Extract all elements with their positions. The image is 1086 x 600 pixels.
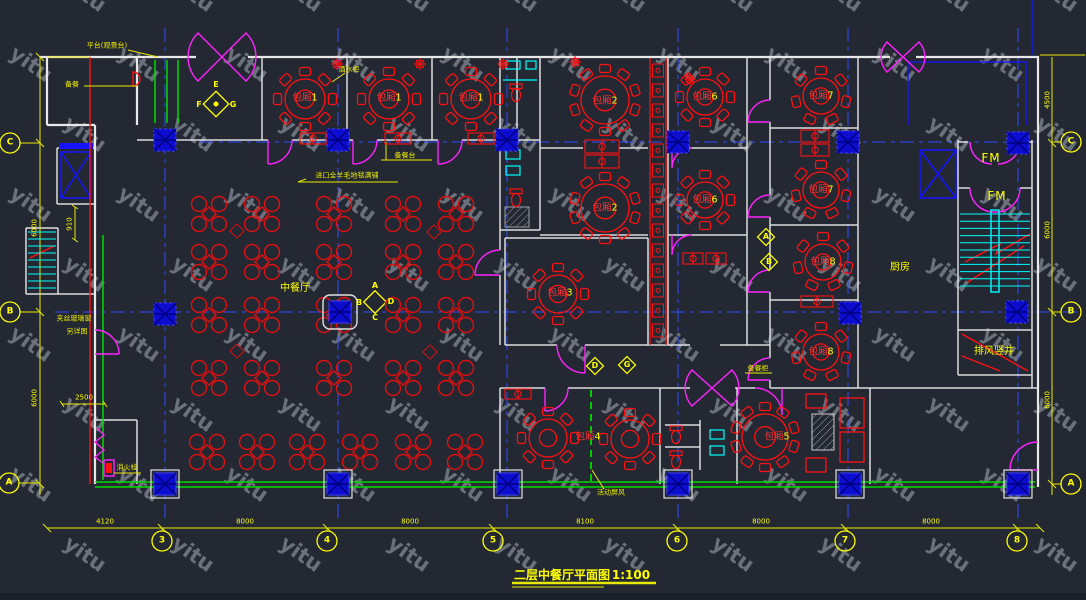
elev-D2: D [388, 298, 395, 306]
dim-right-1: 6000 [1045, 221, 1052, 239]
elev-G2: G [624, 361, 631, 369]
elev-F: F [196, 101, 201, 109]
note-platform: 平台(观景台) [87, 43, 127, 50]
elev-E: E [213, 81, 218, 89]
room-label-bx6a: 包厢6 [692, 92, 717, 102]
grid-left-B: B [7, 308, 14, 317]
note-cabinet: 备餐柜 [748, 366, 769, 373]
note-service: 备餐台 [395, 153, 416, 160]
elev-D: D [592, 362, 599, 370]
room-label-bx3: 包厢3 [547, 288, 572, 298]
room-label-bx1b: 包厢1 [376, 93, 401, 103]
grid-right-C: C [1068, 138, 1075, 147]
grid-7: 7 [842, 537, 848, 546]
dim-bottom-1: 8000 [236, 519, 254, 526]
cad-floorplan: yituyituyituyituyituyituyituyituyituyitu… [0, 0, 1086, 600]
room-label-bx2b: 包厢2 [592, 203, 617, 213]
dim-right-2: 6000 [1045, 391, 1052, 409]
grid-5: 5 [490, 537, 496, 546]
note-glass-1: 夹丝玻璃窗 [57, 316, 92, 323]
area-label-shaft: 排风竖井 [974, 347, 1014, 357]
elev-G: G [230, 101, 237, 109]
grid-right-A: A [1068, 480, 1075, 489]
drawing-scale: 1:100 [612, 569, 650, 581]
elev-C2: C [372, 314, 378, 322]
text-layer: 包厢1 包厢1 包厢1 包厢2 包厢2 包厢3 包厢4 包厢5 包厢6 包厢6 … [0, 0, 1086, 600]
dim-bottom-2: 8000 [401, 519, 419, 526]
room-label-bx8b: 包厢8 [808, 347, 833, 357]
note-screen: 活动屏风 [597, 490, 625, 497]
grid-8: 8 [1014, 537, 1020, 546]
grid-left-A: A [6, 479, 13, 488]
room-label-bx7b: 包厢7 [808, 185, 833, 195]
elev-A2: A [372, 282, 378, 290]
room-label-bx5: 包厢5 [764, 432, 789, 442]
note-hydrant: 消火栓 [117, 465, 138, 472]
room-label-bx2a: 包厢2 [592, 96, 617, 106]
room-label-bx1c: 包厢1 [458, 93, 483, 103]
grid-right-B: B [1068, 308, 1075, 317]
dim-left-0: 6000 [32, 219, 39, 237]
dim-right-0: 4500 [1045, 91, 1052, 109]
area-label-dining: 中餐厅 [280, 284, 310, 294]
room-label-bx7a: 包厢7 [808, 91, 833, 101]
note-wine: 酒水柜 [339, 67, 360, 74]
room-label-bx6b: 包厢6 [692, 195, 717, 205]
elev-B2: B [356, 299, 362, 307]
dim-left-1: 6000 [32, 389, 39, 407]
dim-910: 910 [67, 217, 74, 230]
dim-bottom-5: 8000 [922, 519, 940, 526]
note-glass-2: 另详图 [67, 329, 88, 336]
room-label-bx1a: 包厢1 [292, 93, 317, 103]
elev-B: B [766, 258, 772, 266]
area-label-kitchen: 厨房 [890, 263, 910, 273]
dim-bottom-3: 8100 [576, 519, 594, 526]
grid-4: 4 [324, 537, 330, 546]
grid-6: 6 [674, 537, 680, 546]
room-label-bx8a: 包厢8 [810, 257, 835, 267]
grid-left-C: C [7, 139, 14, 148]
dim-bottom-0: 4120 [96, 519, 114, 526]
elev-A: A [763, 233, 769, 241]
fm-label-1: FM [981, 152, 1000, 164]
note-pantry: 备餐 [65, 82, 79, 89]
fm-label-2: FM [987, 190, 1006, 202]
dim-bottom-4: 8000 [752, 519, 770, 526]
grid-3: 3 [159, 537, 165, 546]
note-carpet: 进口全羊毛地毯满铺 [316, 173, 379, 180]
drawing-title: 二层中餐厅平面图 [514, 569, 610, 581]
room-label-bx4: 包厢4 [575, 432, 600, 442]
dim-2500: 2500 [75, 395, 93, 402]
